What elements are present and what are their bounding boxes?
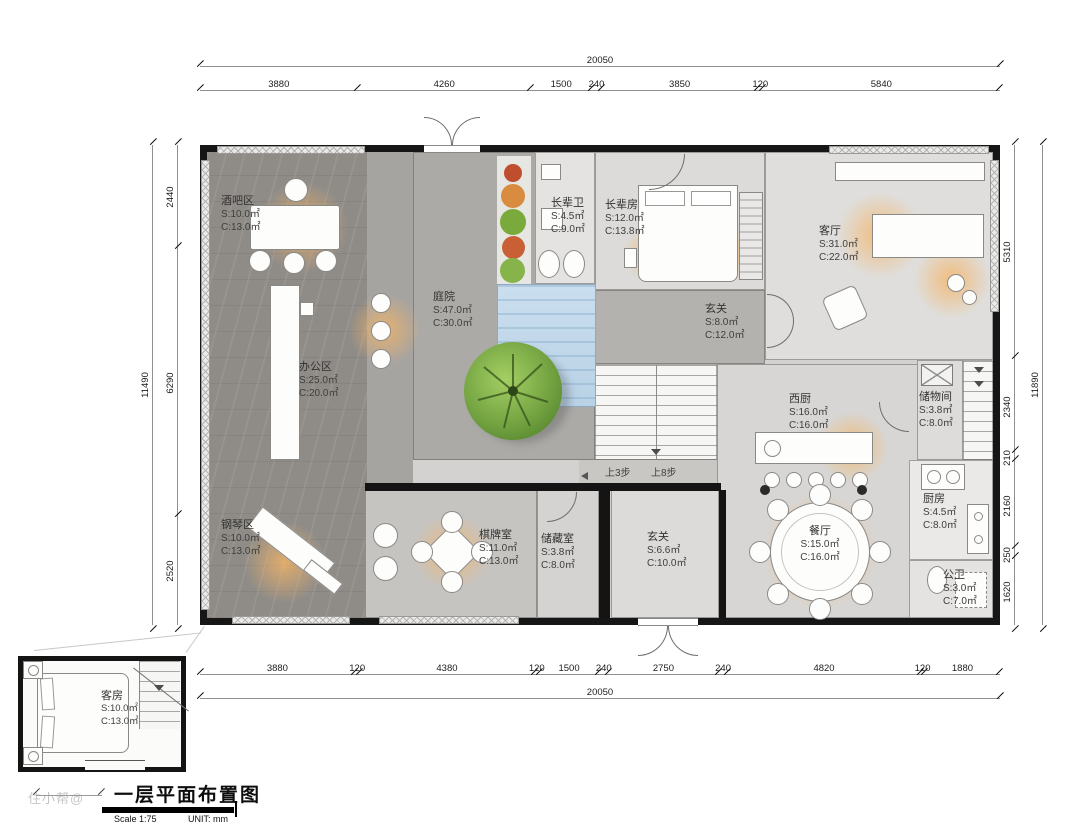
dining-chair [851,583,873,605]
dining-chair [809,484,831,506]
dim-segment: 3880 [200,90,358,91]
stove [921,464,965,490]
lamp [28,665,39,676]
dim-value: 11490 [140,372,151,398]
dim-segment: 11490 [152,145,153,625]
steps-arrow [581,472,588,480]
leader-line [34,632,201,651]
dim-value: 2750 [653,663,674,674]
sofa [872,214,984,258]
dim-segment: 20050 [200,698,1000,699]
dim-segment: 11890 [1042,145,1043,625]
dim-value: 3880 [268,79,289,90]
stair-chevron [974,367,984,373]
dim-segment: 5840 [763,90,1000,91]
dim-value: 1880 [952,663,973,674]
kitchen-island [755,432,873,464]
wardrobe [739,192,763,280]
entry-door-arc [668,626,698,656]
lounge-chair [373,523,398,548]
dim-value: 210 [1002,450,1013,466]
door-opening [424,145,480,153]
burner [927,470,941,484]
room-label-storage: 储藏室S:3.8㎡C:8.0㎡ [541,532,575,572]
dim-segment: 4820 [728,674,920,675]
pillow [40,716,55,749]
sink [974,512,983,521]
dim-segment: 2440 [177,145,178,249]
dim-value: 250 [1002,547,1013,563]
office-chair [371,349,391,369]
scale-bar-tick [235,801,237,817]
bar-stool [284,178,308,202]
dim-segment: 4260 [358,90,531,91]
burner [946,470,960,484]
room-label-courtyard: 庭院S:47.0㎡C:30.0㎡ [433,290,472,330]
dim-segment: 1500 [531,90,592,91]
dim-value: 3850 [669,79,690,90]
tv-cabinet [835,162,985,181]
dim-segment: 4380 [360,674,535,675]
window [217,146,365,154]
toilet [538,250,560,278]
dining-chair [869,541,891,563]
room-label-living: 客厅S:31.0㎡C:22.0㎡ [819,224,858,264]
washbasin [541,164,561,180]
room-label-guest: 客房 S:10.0㎡C:13.0㎡ [101,689,139,728]
bar-counter [250,205,340,250]
steps-annotation-8: 上8步 [651,467,677,480]
stair-rail [656,365,657,459]
office-chair [371,293,391,313]
plant [504,164,522,182]
side-table [947,274,965,292]
tree [464,342,562,440]
dim-segment: 20050 [200,66,1000,67]
dining-chair [767,499,789,521]
dim-segment: 5310 [1014,145,1015,359]
dim-segment: 6290 [177,249,178,517]
room-label-elder-bath: 长辈卫S:4.5㎡C:9.0㎡ [551,196,585,236]
dim-value: 1500 [551,79,572,90]
dim-value: 2340 [1002,396,1013,417]
dim-segment: 1880 [925,674,1000,675]
side-table [962,290,977,305]
shelf [921,364,953,386]
dim-value: 6290 [165,373,176,394]
dim-segment: 2340 [1014,359,1015,453]
room-label-public-bath: 公卫S:3.0㎡C:7.0㎡ [943,568,977,608]
toilet [563,250,585,278]
nightstand [23,747,43,765]
room-label-west-kitchen: 西厨S:16.0㎡C:16.0㎡ [789,392,828,432]
entry-door-arc [452,117,480,145]
dim-value: 3880 [267,663,288,674]
stair-chevron [974,381,984,387]
entry-door-arc [638,626,668,656]
room-label-office: 办公区S:25.0㎡C:20.0㎡ [299,360,338,400]
room-label-pantry: 储物间S:3.8㎡C:8.0㎡ [919,390,953,430]
door-opening [85,760,145,770]
window [990,160,999,312]
dim-value: 2440 [165,186,176,207]
plant [502,236,525,259]
dim-value: 5310 [1002,242,1013,263]
office-desk [270,285,300,460]
office-chair [371,321,391,341]
steps-annotation-3: 上3步 [605,467,631,480]
stool [786,472,802,488]
room-label-piano: 钢琴区S:10.0㎡C:13.0㎡ [221,518,260,558]
entry-door-arc [424,117,452,145]
drawing-title: 一层平面布置图 [114,780,261,807]
dim-segment: 3850 [601,90,757,91]
floor-lamp [760,485,770,495]
window [829,146,989,154]
chess-chair [441,511,463,533]
room-label-foyer-upper: 玄关S:8.0㎡C:12.0㎡ [705,302,744,342]
tree-branches [464,342,562,440]
unit-label: UNIT: mm [188,814,228,824]
dim-segment: 2520 [177,517,178,625]
wall [599,490,610,618]
plant [501,184,525,208]
pillow [40,678,55,711]
stair-direction-arrow [154,685,164,691]
bar-stool [315,250,337,272]
plant [500,258,525,283]
inset-stairs [139,661,180,729]
floor-plan: 酒吧区S:10.0㎡C:13.0㎡ 办公区S:25.0㎡C:20.0㎡ 钢琴区S… [200,145,1000,625]
wall [365,483,721,491]
lamp [28,751,39,762]
plant [500,209,526,235]
lounge-chair [373,556,398,581]
dining-chair [767,583,789,605]
chess-chair [441,571,463,593]
dim-value: 4820 [813,663,834,674]
window [201,160,210,610]
window [232,616,350,624]
dining-chair [809,598,831,620]
dim-segment: 3880 [200,674,355,675]
dim-value: 5840 [871,79,892,90]
scale-bar [102,807,234,813]
dim-value: 2520 [165,561,176,582]
dim-value: 11890 [1030,372,1041,398]
pillow [691,191,731,206]
dim-value: 2160 [1002,495,1013,516]
title-block: 住小帮@ 一层平面布置图 Scale 1:75 UNIT: mm [28,779,288,823]
dim-value: 4260 [434,79,455,90]
nightstand [23,661,43,679]
room-label-foyer-lower: 玄关S:6.6㎡C:10.0㎡ [647,530,686,570]
room-label-chess: 棋牌室S:11.0㎡C:13.0㎡ [479,528,518,568]
room-label-bar: 酒吧区S:10.0㎡C:13.0㎡ [221,194,260,234]
dim-value: 4380 [436,663,457,674]
island-sink [764,440,781,457]
chess-chair [411,541,433,563]
dim-value: 1620 [1002,582,1013,603]
kitchen-counter [967,504,989,554]
floor-lamp [857,485,867,495]
title-leader-line [36,795,102,796]
bed [638,185,738,282]
guest-room-inset: 客房 S:10.0㎡C:13.0㎡ [18,656,186,772]
dining-chair [749,541,771,563]
room-label-dining: 餐厅S:15.0㎡C:16.0㎡ [790,524,850,564]
stairs-main [595,364,717,460]
room-label-kitchen: 厨房S:4.5㎡C:8.0㎡ [923,492,957,532]
wall [719,490,726,618]
dim-segment: 1620 [1014,560,1015,625]
door-opening [638,618,698,626]
dining-chair [851,499,873,521]
leader-line [186,626,205,653]
room-label-elder-room: 长辈房S:12.0㎡C:13.8㎡ [605,198,644,238]
nightstand [624,248,637,268]
scale-label: Scale 1:75 [114,814,157,824]
stair-direction-arrow [651,449,661,455]
desk-item [300,302,314,316]
sink [974,535,983,544]
pillow [645,191,685,206]
dim-segment: 2160 [1014,462,1015,549]
dim-segment: 2750 [609,674,719,675]
floor-plan-page: 20050 38804260150024038501205840 3880120… [0,0,1080,824]
dim-value: 20050 [587,687,613,698]
stool [830,472,846,488]
dim-value: 20050 [587,55,613,66]
dim-segment: 1500 [539,674,599,675]
bar-stool [283,252,305,274]
bar-stool [249,250,271,272]
dim-value: 1500 [558,663,579,674]
window [379,616,519,624]
stairs-side [963,360,993,460]
